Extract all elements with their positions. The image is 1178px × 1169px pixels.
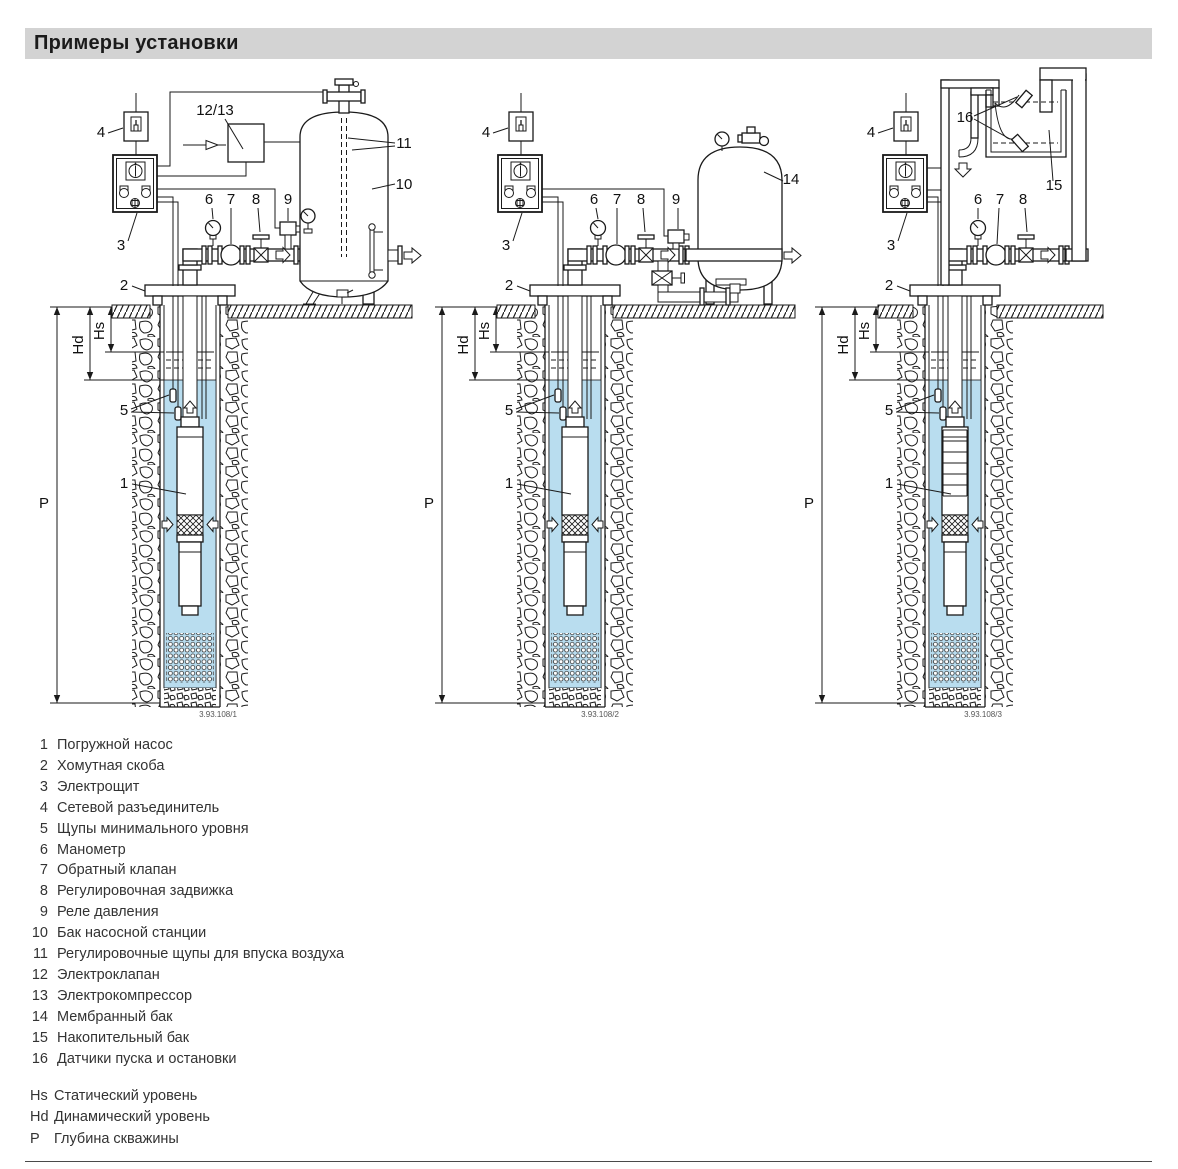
legend-item: 2Хомутная скоба <box>30 756 344 777</box>
figure-number: 3.93.108/1 <box>199 710 237 719</box>
legend-list: 1Погружной насос 2Хомутная скоба 3Электр… <box>30 735 344 1070</box>
level-definitions: HsСтатический уровень HdДинамический уро… <box>30 1086 210 1150</box>
diagram-2: 4 3 6 7 8 9 14 3.93.108/2 <box>424 93 801 719</box>
ground-hatch <box>878 305 913 318</box>
legend-num: 16 <box>30 1049 48 1070</box>
legend-num: 10 <box>30 923 48 944</box>
diagram-1: 4 12/13 11 10 6 7 8 9 3 3.93.108/1 <box>39 79 421 719</box>
discharge-pipe <box>686 249 782 261</box>
level-symbol: Hs <box>30 1086 54 1107</box>
callout-level-sensors: 16 <box>957 109 974 126</box>
legend-label: Мембранный бак <box>57 1007 173 1028</box>
tank-top-valve-assembly <box>323 79 365 113</box>
legend-label: Электрокомпрессор <box>57 986 192 1007</box>
legend-num: 1 <box>30 735 48 756</box>
callout-membrane-tank: 14 <box>783 171 800 188</box>
legend-num: 8 <box>30 881 48 902</box>
legend-num: 11 <box>30 944 48 965</box>
page: { "page": { "title": "Примеры установки"… <box>0 0 1178 1169</box>
callout-gate-valve: 8 <box>637 191 645 208</box>
level-label: Статический уровень <box>54 1086 197 1107</box>
legend-item: 16Датчики пуска и остановки <box>30 1049 344 1070</box>
outflow-arrow-icon <box>404 248 421 263</box>
callout-pressure-switch: 9 <box>672 191 680 208</box>
legend-label: Реле давления <box>57 902 159 923</box>
callout-check-valve: 7 <box>613 191 621 208</box>
legend-label: Электрощит <box>57 777 139 798</box>
callout-panel: 3 <box>502 237 510 254</box>
legend-label: Электроклапан <box>57 965 160 986</box>
legend-num: 3 <box>30 777 48 798</box>
figure-number: 3.93.108/3 <box>964 710 1002 719</box>
callout-panel: 3 <box>887 237 895 254</box>
legend-num: 6 <box>30 840 48 861</box>
legend-item: 9Реле давления <box>30 902 344 923</box>
supply-riser-pipe <box>1040 68 1088 261</box>
legend-item: 10Бак насосной станции <box>30 923 344 944</box>
level-item: PГлубина скважины <box>30 1129 210 1150</box>
callout-gauge: 6 <box>205 191 213 208</box>
outflow-arrow-icon <box>784 248 801 263</box>
legend-item: 15Накопительный бак <box>30 1028 344 1049</box>
callout-air-probes: 11 <box>396 135 412 152</box>
level-sensor-stop <box>1012 134 1029 151</box>
legend-item: 7Обратный клапан <box>30 860 344 881</box>
level-sensor-start <box>1016 90 1032 107</box>
callout-station-tank: 10 <box>396 176 413 193</box>
legend-label: Хомутная скоба <box>57 756 164 777</box>
callout-check-valve: 7 <box>227 191 235 208</box>
tank-outlet <box>388 246 421 264</box>
level-label: Глубина скважины <box>54 1129 179 1150</box>
level-item: HdДинамический уровень <box>30 1107 210 1128</box>
outflow-down-arrow-icon <box>955 163 971 177</box>
legend-item: 14Мембранный бак <box>30 1007 344 1028</box>
callout-storage-tank: 15 <box>1046 177 1063 194</box>
legend-label: Регулировочная задвижка <box>57 881 233 902</box>
callout-disconnect: 4 <box>97 124 105 141</box>
callout-gate-valve: 8 <box>252 191 260 208</box>
legend-label: Регулировочные щупы для впуска воздуха <box>57 944 344 965</box>
tank-outlet-pipe <box>955 88 993 177</box>
legend-num: 4 <box>30 798 48 819</box>
legend-label: Щупы минимального уровня <box>57 819 249 840</box>
legend-label: Обратный клапан <box>57 860 177 881</box>
level-symbol: Hd <box>30 1107 54 1128</box>
page-bottom-rule <box>25 1161 1152 1162</box>
legend-num: 2 <box>30 756 48 777</box>
legend-num: 9 <box>30 902 48 923</box>
level-item: HsСтатический уровень <box>30 1086 210 1107</box>
legend-item: 4Сетевой разъединитель <box>30 798 344 819</box>
legend-num: 12 <box>30 965 48 986</box>
callout-gauge: 6 <box>590 191 598 208</box>
ground-hatch <box>613 305 795 318</box>
level-symbol: P <box>30 1129 54 1150</box>
legend-item: 8Регулировочная задвижка <box>30 881 344 902</box>
callout-gate-valve: 8 <box>1019 191 1027 208</box>
legend-item: 5Щупы минимального уровня <box>30 819 344 840</box>
legend-item: 13Электрокомпрессор <box>30 986 344 1007</box>
callout-check-valve: 7 <box>996 191 1004 208</box>
legend-num: 7 <box>30 860 48 881</box>
legend-label: Датчики пуска и остановки <box>57 1049 236 1070</box>
legend-label: Бак насосной станции <box>57 923 206 944</box>
ground-hatch <box>497 305 535 318</box>
figure-number: 3.93.108/2 <box>581 710 619 719</box>
ground-hatch <box>997 305 1103 318</box>
installation-diagrams: P Hd Hs 5 1 2 <box>0 0 1178 730</box>
legend-label: Манометр <box>57 840 126 861</box>
callout-disconnect: 4 <box>482 124 490 141</box>
level-label: Динамический уровень <box>54 1107 210 1128</box>
legend-item: 3Электрощит <box>30 777 344 798</box>
solenoid-compressor-box <box>183 124 264 162</box>
legend-num: 13 <box>30 986 48 1007</box>
pressure-switch <box>280 222 301 249</box>
legend-num: 5 <box>30 819 48 840</box>
legend-num: 14 <box>30 1007 48 1028</box>
legend-num: 15 <box>30 1028 48 1049</box>
legend-label: Сетевой разъединитель <box>57 798 219 819</box>
callout-valve-compressor: 12/13 <box>196 102 234 119</box>
callout-disconnect: 4 <box>867 124 875 141</box>
membrane-tank <box>652 127 782 305</box>
ground-hatch <box>228 305 412 318</box>
legend-item: 11Регулировочные щупы для впуска воздуха <box>30 944 344 965</box>
legend-label: Погружной насос <box>57 735 173 756</box>
legend-item: 6Манометр <box>30 840 344 861</box>
callout-pressure-switch: 9 <box>284 191 292 208</box>
air-inlet-arrow-icon <box>206 141 218 150</box>
ground-hatch <box>112 305 150 318</box>
callout-gauge: 6 <box>974 191 982 208</box>
callout-panel: 3 <box>117 237 125 254</box>
legend-item: 1Погружной насос <box>30 735 344 756</box>
diagram-3: 4 3 6 7 8 16 15 3.93.108/3 <box>804 68 1103 719</box>
legend-item: 12Электроклапан <box>30 965 344 986</box>
legend-label: Накопительный бак <box>57 1028 189 1049</box>
